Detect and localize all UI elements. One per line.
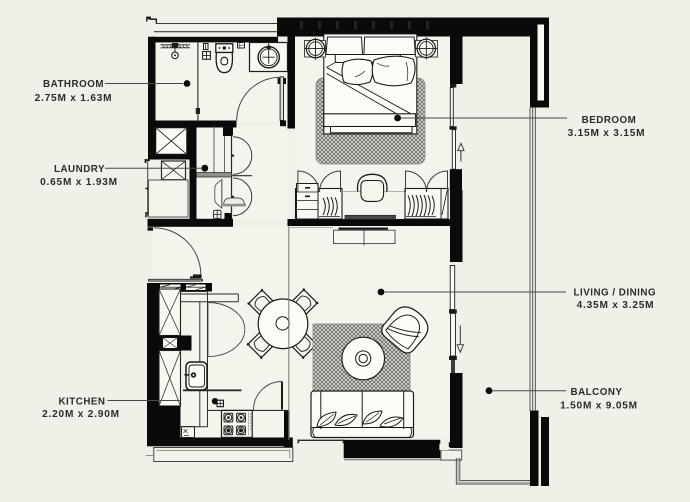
svg-text:0.65M x 1.93M: 0.65M x 1.93M	[40, 177, 118, 188]
svg-text:LAUNDRY: LAUNDRY	[54, 164, 105, 175]
svg-text:2.75M x 1.63M: 2.75M x 1.63M	[35, 93, 113, 104]
svg-text:3.15M x 3.15M: 3.15M x 3.15M	[568, 128, 646, 139]
svg-text:1.50M x 9.05M: 1.50M x 9.05M	[560, 400, 638, 411]
svg-text:2.20M x 2.90M: 2.20M x 2.90M	[42, 409, 120, 420]
svg-text:KITCHEN: KITCHEN	[58, 396, 105, 407]
svg-text:BATHROOM: BATHROOM	[43, 79, 104, 90]
svg-text:BALCONY: BALCONY	[571, 387, 623, 398]
svg-text:BEDROOM: BEDROOM	[582, 115, 637, 126]
svg-text:LIVING / DINING: LIVING / DINING	[573, 288, 656, 299]
svg-text:4.35M x 3.25M: 4.35M x 3.25M	[577, 300, 655, 311]
